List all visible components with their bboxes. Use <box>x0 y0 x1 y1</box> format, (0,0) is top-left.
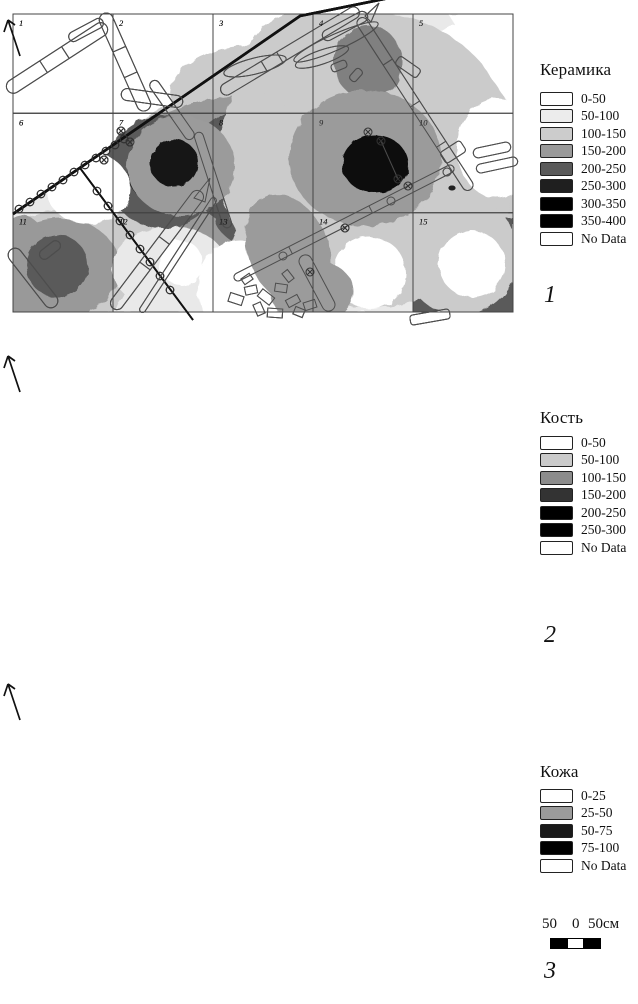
legend-swatch <box>540 523 573 537</box>
legend-swatch <box>540 144 573 158</box>
scale-bar: 50 0 50см <box>538 916 638 956</box>
scale-bar-graphic <box>550 938 601 949</box>
map-panel-leather: 123456789101112131415 <box>0 0 530 332</box>
grid-cell-number: 10 <box>419 117 428 127</box>
scale-bar-segment <box>583 939 600 948</box>
grid-cell-number: 14 <box>319 217 328 227</box>
legend-label: 100-150 <box>581 126 626 142</box>
legend-swatch <box>540 841 573 855</box>
legend-label: 0-25 <box>581 788 606 804</box>
scale-label: 50см <box>588 916 619 933</box>
north-arrow-icon <box>0 676 26 724</box>
legend-item: 150-200 <box>540 487 626 505</box>
scale-label: 0 <box>572 916 580 933</box>
legend-swatch <box>540 197 573 211</box>
legend-title-ceramics: Керамика <box>540 60 611 80</box>
legend-swatch <box>540 162 573 176</box>
legend-label: 300-350 <box>581 196 626 212</box>
legend-title-bone: Кость <box>540 408 583 428</box>
legend-item: 250-300 <box>540 522 626 540</box>
legend-item: No Data <box>540 539 626 557</box>
legend-item: 100-150 <box>540 469 626 487</box>
legend-item: 75-100 <box>540 840 626 858</box>
legend-swatch <box>540 232 573 246</box>
grid-cell-number: 7 <box>119 117 124 127</box>
grid-cell-number: 2 <box>119 18 124 28</box>
legend-label: No Data <box>581 231 626 247</box>
legend-title-leather: Кожа <box>540 762 579 782</box>
legend-item: No Data <box>540 230 626 248</box>
legend-label: 150-200 <box>581 487 626 503</box>
legend-label: 50-100 <box>581 108 619 124</box>
panel-number: 1 <box>544 282 556 309</box>
grid-cell-number: 15 <box>419 217 428 227</box>
legend-label: 200-250 <box>581 505 626 521</box>
legend-swatch <box>540 109 573 123</box>
legend-label: No Data <box>581 540 626 556</box>
legend-item: 0-25 <box>540 787 626 805</box>
legend-label: No Data <box>581 858 626 874</box>
legend-swatch <box>540 806 573 820</box>
legend-label: 150-200 <box>581 143 626 159</box>
scale-bar-segment <box>568 939 583 948</box>
legend-label: 75-100 <box>581 840 619 856</box>
legend-ceramics: 0-5050-100100-150150-200200-250250-30030… <box>540 90 626 248</box>
panel-number: 3 <box>544 958 556 985</box>
grid-cell-number: 4 <box>319 18 324 28</box>
legend-label: 350-400 <box>581 213 626 229</box>
legend-item: 150-200 <box>540 143 626 161</box>
grid-cell-number: 11 <box>19 217 27 227</box>
grid-cell-number: 3 <box>218 18 223 28</box>
legend-label: 250-300 <box>581 178 626 194</box>
panel-number: 2 <box>544 622 556 649</box>
legend-item: 50-100 <box>540 108 626 126</box>
legend-swatch <box>540 471 573 485</box>
legend-swatch <box>540 453 573 467</box>
legend-item: 50-75 <box>540 822 626 840</box>
legend-item: 350-400 <box>540 213 626 231</box>
grid-cell-number: 5 <box>419 18 423 28</box>
legend-label: 100-150 <box>581 470 626 486</box>
legend-item: 200-250 <box>540 160 626 178</box>
density-zone <box>342 135 408 193</box>
legend-swatch <box>540 214 573 228</box>
grid-cell-number: 8 <box>219 117 224 127</box>
legend-item: 50-100 <box>540 452 626 470</box>
legend-item: 300-350 <box>540 195 626 213</box>
legend-label: 50-100 <box>581 452 619 468</box>
grid-cell-number: 12 <box>119 217 128 227</box>
legend-bone: 0-5050-100100-150150-200200-250250-300No… <box>540 434 626 557</box>
legend-swatch <box>540 488 573 502</box>
north-arrow-icon <box>0 12 26 60</box>
grid-cell-number: 13 <box>219 217 228 227</box>
legend-swatch <box>540 824 573 838</box>
legend-swatch <box>540 92 573 106</box>
legend-swatch <box>540 789 573 803</box>
legend-swatch <box>540 541 573 555</box>
grid-cell-number: 6 <box>19 117 24 127</box>
legend-swatch <box>540 859 573 873</box>
legend-item: No Data <box>540 857 626 875</box>
legend-item: 100-150 <box>540 125 626 143</box>
scale-label: 50 <box>542 916 557 933</box>
legend-label: 0-50 <box>581 435 606 451</box>
legend-item: 200-250 <box>540 504 626 522</box>
legend-leather: 0-2525-5050-7575-100No Data <box>540 787 626 875</box>
legend-swatch <box>540 436 573 450</box>
legend-label: 25-50 <box>581 805 613 821</box>
legend-item: 25-50 <box>540 805 626 823</box>
legend-item: 250-300 <box>540 178 626 196</box>
legend-item: 0-50 <box>540 90 626 108</box>
density-zone <box>150 139 198 187</box>
scale-bar-segment <box>551 939 568 948</box>
legend-label: 200-250 <box>581 161 626 177</box>
legend-swatch <box>540 506 573 520</box>
legend-label: 50-75 <box>581 823 613 839</box>
legend-item: 0-50 <box>540 434 626 452</box>
legend-swatch <box>540 127 573 141</box>
north-arrow-icon <box>0 348 26 396</box>
legend-label: 250-300 <box>581 522 626 538</box>
legend-swatch <box>540 179 573 193</box>
legend-label: 0-50 <box>581 91 606 107</box>
